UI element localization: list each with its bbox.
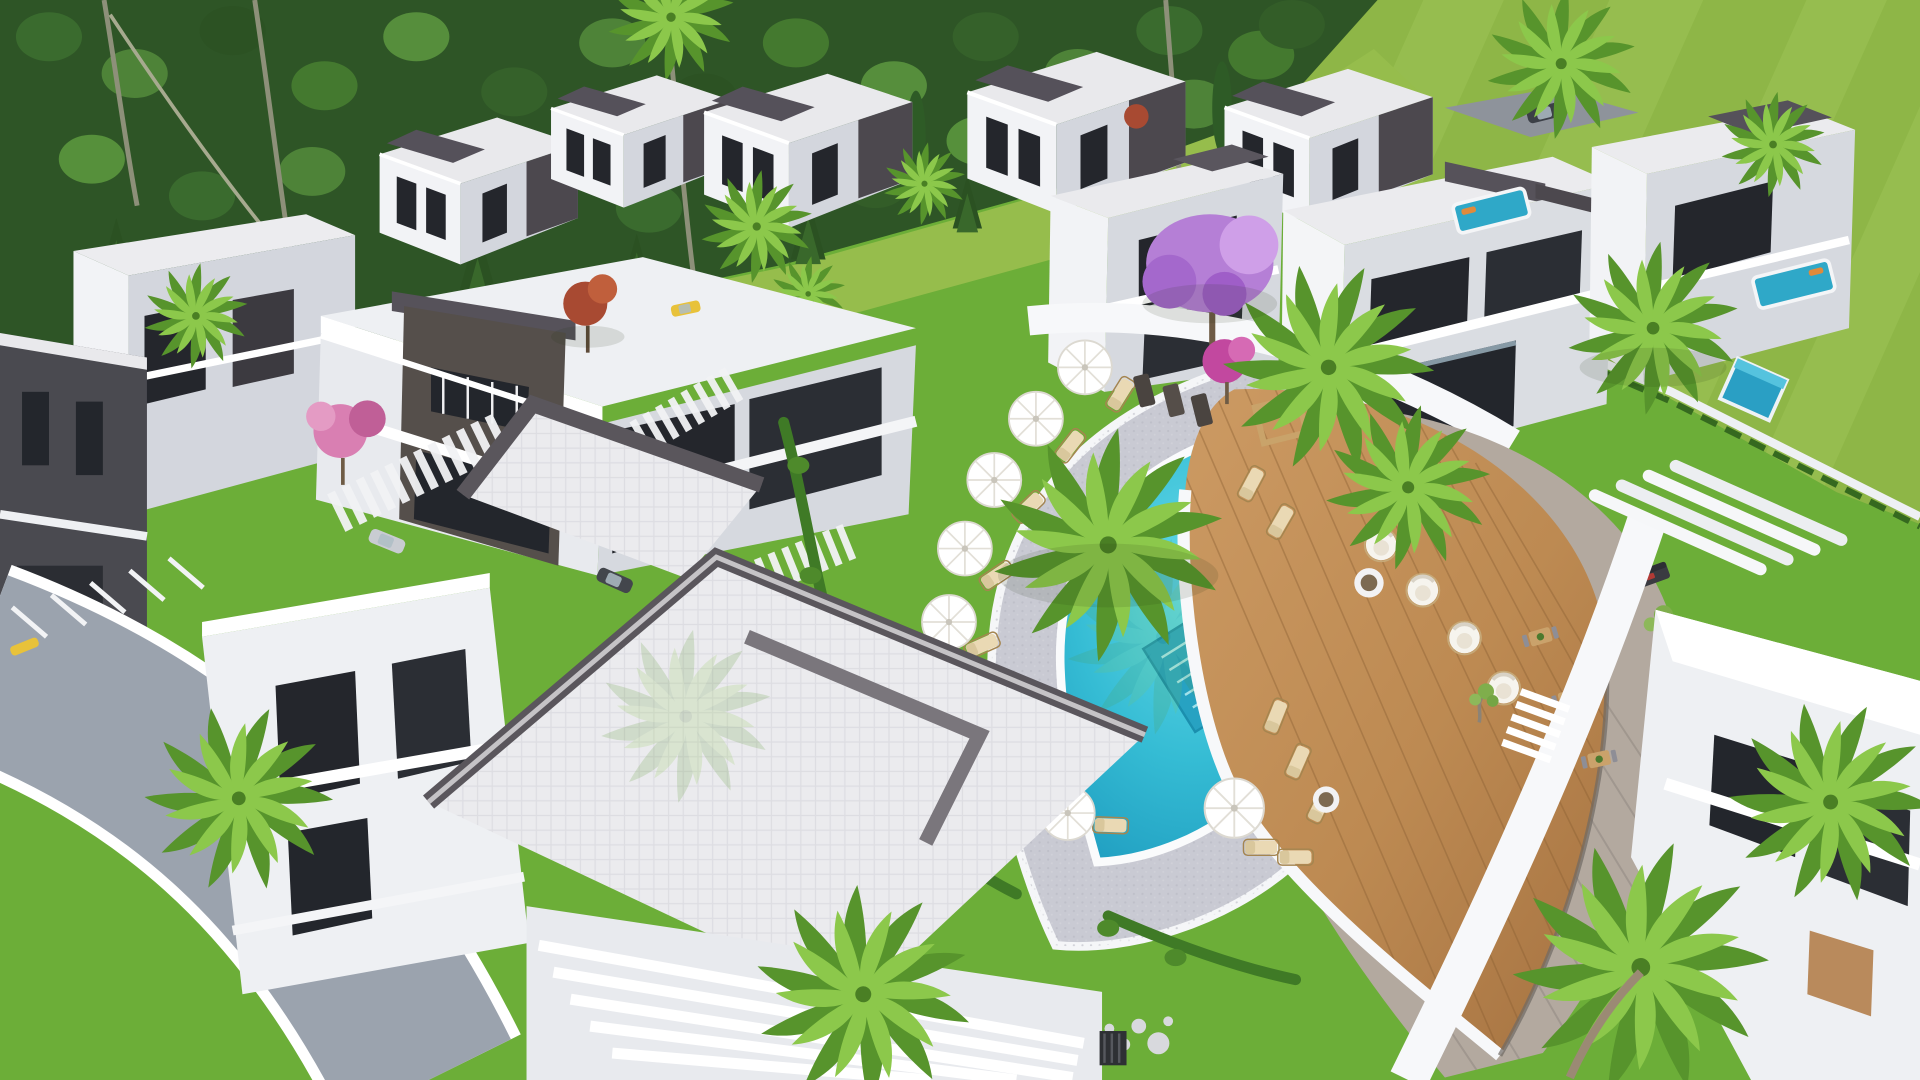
villa-resort-render [0,0,1920,1080]
red-bush [1124,104,1148,128]
render-viewport [0,0,1920,1080]
